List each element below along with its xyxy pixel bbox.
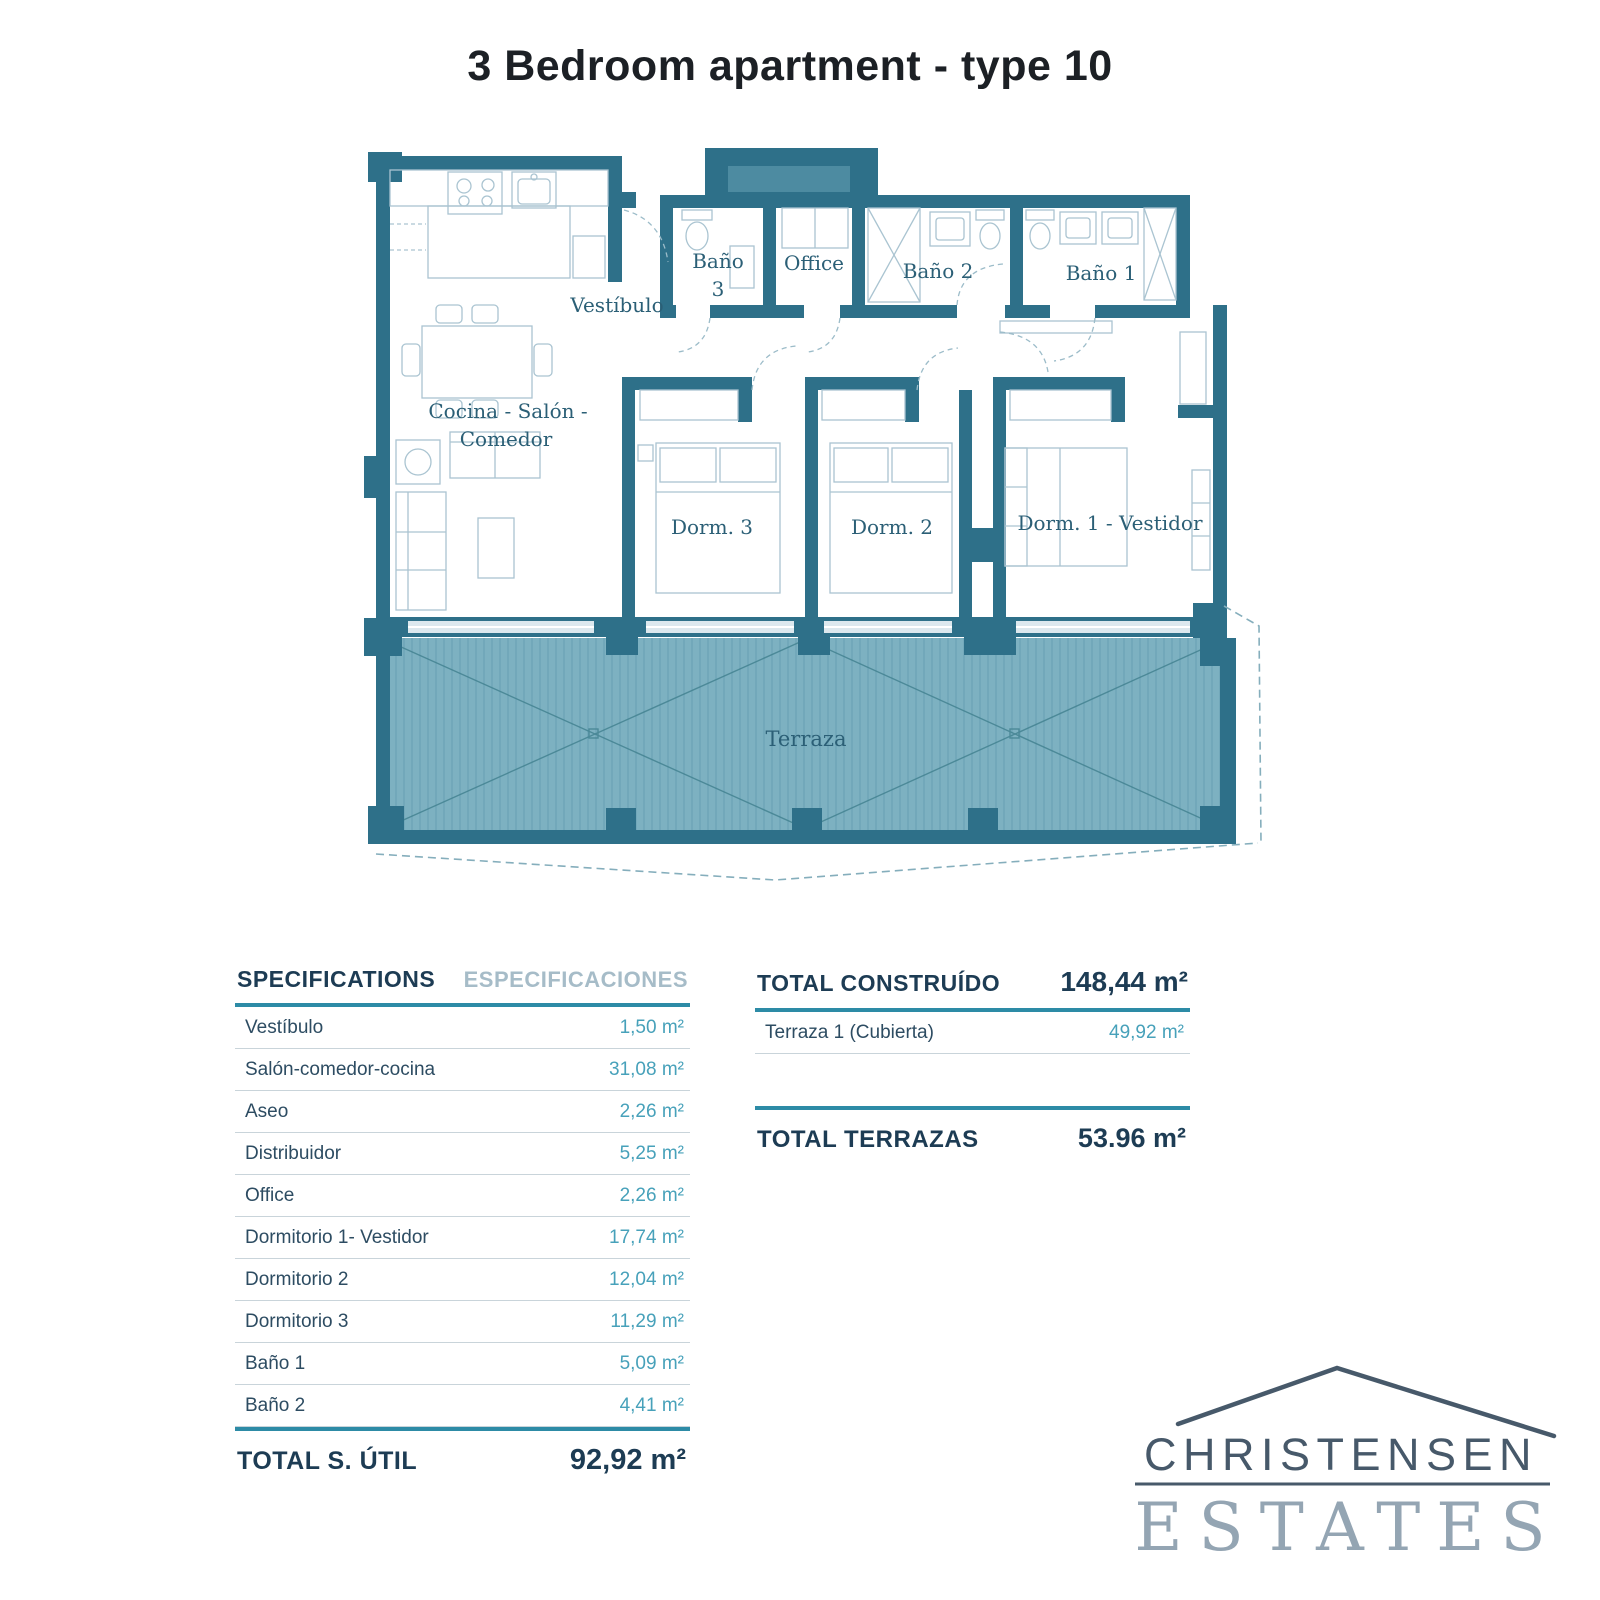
table-row: Aseo 2,26 m² xyxy=(235,1091,690,1133)
terrace-row-value: 49,92 m² xyxy=(1109,1022,1184,1044)
table-row: Office 2,26 m² xyxy=(235,1175,690,1217)
room-label-dorm2: Dorm. 2 xyxy=(851,515,933,539)
floor-plan: Vestíbulo Baño 3 Office Baño 2 Baño 1 Co… xyxy=(360,140,1270,930)
room-label-bano3-line2: 3 xyxy=(712,277,725,301)
tv-unit-icon xyxy=(396,440,440,484)
sofa xyxy=(396,432,540,610)
spec-row-value: 5,09 m² xyxy=(620,1353,684,1375)
spacer xyxy=(755,1054,1190,1106)
spec-row-label: Distribuidor xyxy=(245,1143,341,1165)
spec-row-label: Dormitorio 2 xyxy=(245,1269,348,1291)
coffee-table xyxy=(478,518,514,578)
specifications-header-en: SPECIFICATIONS xyxy=(237,966,435,993)
room-label-vestibulo: Vestíbulo xyxy=(569,293,663,317)
room-label-dorm1: Dorm. 1 - Vestidor xyxy=(1017,511,1202,535)
toilet-icon-bano2 xyxy=(976,210,1004,249)
closet-dorm3 xyxy=(640,390,738,420)
shower-icon-bano1 xyxy=(1144,208,1176,300)
spec-row-value: 11,29 m² xyxy=(610,1311,684,1333)
specifications-header: SPECIFICATIONS ESPECIFICACIONES xyxy=(235,966,690,1007)
terrace-total-label: TOTAL TERRAZAS xyxy=(757,1126,979,1154)
spec-row-value: 2,26 m² xyxy=(620,1101,684,1123)
table-row: Dormitorio 1- Vestidor 17,74 m² xyxy=(235,1217,690,1259)
furniture xyxy=(390,170,1210,610)
built-area-table: TOTAL CONSTRUÍDO 148,44 m² Terraza 1 (Cu… xyxy=(755,966,1190,1154)
specifications-table: SPECIFICATIONS ESPECIFICACIONES Vestíbul… xyxy=(235,966,690,1477)
room-label-office: Office xyxy=(784,251,844,275)
bed-dorm1 xyxy=(1005,448,1127,566)
room-label-cocina-line1: Cocina - Salón - xyxy=(428,399,587,423)
closet-vestidor xyxy=(1180,332,1206,404)
kitchen-counter-icon xyxy=(390,170,608,278)
spec-row-label: Dormitorio 1- Vestidor xyxy=(245,1227,429,1249)
spec-row-label: Office xyxy=(245,1185,294,1207)
room-label-cocina-line2: Comedor xyxy=(460,427,553,451)
spec-row-label: Salón-comedor-cocina xyxy=(245,1059,435,1081)
flyer-page: 3 Bedroom apartment - type 10 xyxy=(0,0,1600,1600)
toilet-icon-bano3 xyxy=(682,210,712,250)
table-row: Distribuidor 5,25 m² xyxy=(235,1133,690,1175)
terrace-row-label: Terraza 1 (Cubierta) xyxy=(765,1022,934,1044)
table-row: Baño 1 5,09 m² xyxy=(235,1343,690,1385)
spec-row-value: 2,26 m² xyxy=(620,1185,684,1207)
spec-row-value: 5,25 m² xyxy=(620,1143,684,1165)
built-header-value: 148,44 m² xyxy=(1060,966,1188,998)
shower-icon-bano2 xyxy=(868,208,920,302)
terrace-total-value: 53.96 m² xyxy=(1078,1123,1186,1154)
closet-dorm1 xyxy=(1010,390,1111,420)
spec-row-label: Aseo xyxy=(245,1101,288,1123)
logo-subname: ESTATES xyxy=(1134,1489,1561,1566)
table-row: Vestíbulo 1,50 m² xyxy=(235,1007,690,1049)
spec-row-value: 4,41 m² xyxy=(620,1395,684,1417)
room-label-bano1: Baño 1 xyxy=(1066,261,1137,285)
spec-row-value: 1,50 m² xyxy=(620,1017,684,1039)
spec-row-label: Vestíbulo xyxy=(245,1017,323,1039)
spec-total-row: TOTAL S. ÚTIL 92,92 m² xyxy=(235,1427,690,1477)
built-header-label: TOTAL CONSTRUÍDO xyxy=(757,970,1000,997)
spec-row-value: 17,74 m² xyxy=(609,1227,684,1249)
table-row: Dormitorio 2 12,04 m² xyxy=(235,1259,690,1301)
kitchen-sink-icon xyxy=(512,172,556,208)
roof-icon xyxy=(1178,1368,1554,1436)
spec-total-label: TOTAL S. ÚTIL xyxy=(237,1447,417,1476)
spec-row-value: 31,08 m² xyxy=(609,1059,684,1081)
room-label-bano3-line1: Baño xyxy=(692,249,744,273)
sink-icons-bano1 xyxy=(1060,212,1138,244)
room-label-bano2: Baño 2 xyxy=(903,259,974,283)
specifications-header-es: ESPECIFICACIONES xyxy=(464,967,688,993)
spec-row-label: Dormitorio 3 xyxy=(245,1311,348,1333)
stove-icon xyxy=(448,172,502,214)
spec-row-label: Baño 2 xyxy=(245,1395,305,1417)
built-header: TOTAL CONSTRUÍDO 148,44 m² xyxy=(755,966,1190,1012)
closet-dorm2 xyxy=(822,390,905,420)
table-row: Terraza 1 (Cubierta) 49,92 m² xyxy=(755,1012,1190,1054)
sink-icon-bano2 xyxy=(930,212,970,246)
room-label-dorm3: Dorm. 3 xyxy=(671,515,753,539)
spec-row-label: Baño 1 xyxy=(245,1353,305,1375)
table-row: Dormitorio 3 11,29 m² xyxy=(235,1301,690,1343)
office-closet xyxy=(782,208,848,248)
toilet-icon-bano1 xyxy=(1026,210,1054,249)
room-label-terraza: Terraza xyxy=(766,727,847,751)
terrace-total-row: TOTAL TERRAZAS 53.96 m² xyxy=(755,1106,1190,1154)
closet-distribuidor xyxy=(1000,321,1112,333)
logo-name: CHRISTENSEN xyxy=(1144,1429,1538,1480)
page-title: 3 Bedroom apartment - type 10 xyxy=(0,42,1580,91)
spec-row-value: 12,04 m² xyxy=(609,1269,684,1291)
spec-total-value: 92,92 m² xyxy=(570,1444,686,1477)
company-logo: CHRISTENSEN ESTATES xyxy=(1090,1338,1565,1573)
table-row: Salón-comedor-cocina 31,08 m² xyxy=(235,1049,690,1091)
table-row: Baño 2 4,41 m² xyxy=(235,1385,690,1427)
